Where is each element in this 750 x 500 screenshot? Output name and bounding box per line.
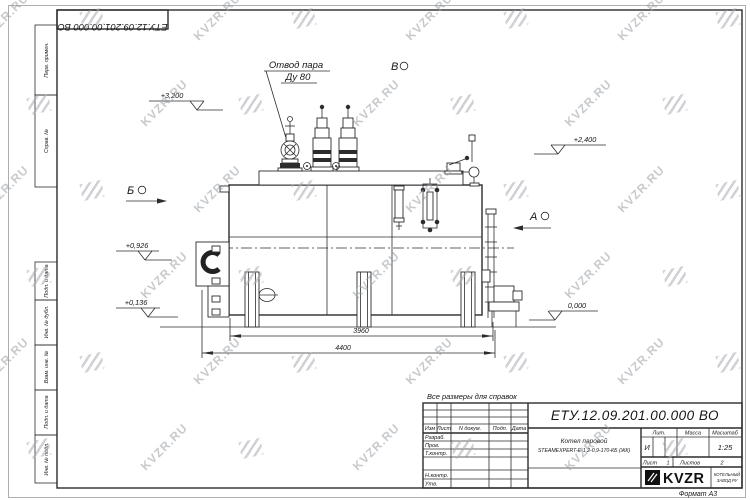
tb-lit-value: И xyxy=(644,443,650,452)
tb-doc-number: ЕТУ.12.09.201.00.000 ВО xyxy=(551,408,719,423)
tb-row-nkontr: Н.контр. xyxy=(425,473,448,479)
steam-header xyxy=(259,171,463,185)
callout-line2: Ду 80 xyxy=(285,72,311,83)
drawing-canvas: ЕТУ.12.09.201.00.000 ВО Перв. примен. Сп… xyxy=(0,0,750,500)
callout-line1: Отвод пара xyxy=(269,60,323,71)
level-gauge-1 xyxy=(394,186,404,230)
view-mark-b-left: Б xyxy=(126,185,167,204)
tb-row-tkontr: Т.контр. xyxy=(425,451,447,457)
elevation-3200-text: +3,200 xyxy=(161,91,184,100)
safety-valve-2 xyxy=(337,105,359,171)
elevation-0136-text: +0,136 xyxy=(125,298,148,307)
tb-header-podp: Подп. xyxy=(493,426,508,432)
elevation-2400: +2,400 xyxy=(534,135,606,154)
view-label-a: А xyxy=(529,211,537,223)
tb-row-utv: Утв. xyxy=(424,482,438,488)
tb-header-massa: Масса xyxy=(685,431,701,437)
margin-label-inv-dubl: Инв. № дубл. xyxy=(44,306,50,339)
tb-row-prov: Пров. xyxy=(425,443,440,449)
reference-note: Все размеры для справок xyxy=(427,392,517,401)
elevation-0000: 0,000 xyxy=(529,301,598,320)
burner-assembly xyxy=(196,186,229,317)
title-block: Изм Лист N докум. Подп. Дата Разраб. Про… xyxy=(423,403,742,498)
margin-label-podp-data-1: Подп. и дата xyxy=(44,264,50,297)
view-mark-v-top: В xyxy=(391,61,408,73)
level-gauge-2 xyxy=(421,178,440,232)
view-mark-a-right: А xyxy=(513,211,551,231)
elevation-3200: +3,200 xyxy=(149,91,223,110)
tb-name-line1: Котел паровой xyxy=(561,437,608,445)
tb-sheets-value: 2 xyxy=(719,461,723,467)
tb-header-masshtab: Масштаб xyxy=(712,431,739,437)
tb-sheet-label: Лист xyxy=(642,461,658,467)
elevation-0926: +0,926 xyxy=(116,241,172,260)
kvzr-logo-text: KVZR xyxy=(663,471,705,487)
dim-4400-text: 4400 xyxy=(335,345,351,352)
margin-label-perv-primen: Перв. примен. xyxy=(44,42,50,77)
elevation-0136: +0,136 xyxy=(116,298,178,317)
drawing-sheet: KVZR.RUKVZR.RUKVZR.RUKVZR.RUKVZR.RUKVZR.… xyxy=(0,0,750,500)
elevation-0926-text: +0,926 xyxy=(126,241,149,250)
tb-sheet-value: 1 xyxy=(666,461,669,467)
kvzr-logo: KVZR КОТЕЛЬНЫЙ ЗАВОД РУ xyxy=(645,470,740,487)
support-legs xyxy=(245,272,475,327)
safety-valve-1 xyxy=(311,105,333,171)
boiler-side-view xyxy=(160,105,556,327)
tb-scale-value: 1:25 xyxy=(718,443,733,452)
tb-name-line2: STEAMEXPERT-Е-1,2-0,9-170-КБ (ЖК) xyxy=(538,448,631,454)
kvzr-logo-sub2: ЗАВОД РУ xyxy=(717,478,739,483)
margin-label-sprav-n: Справ. № xyxy=(44,129,50,153)
kvzr-logo-sub1: КОТЕЛЬНЫЙ xyxy=(714,472,740,477)
tb-header-ndoc: N докум. xyxy=(459,426,481,432)
tb-header-lit: Лит. xyxy=(652,431,666,437)
sheet-frame: ЕТУ.12.09.201.00.000 ВО Перв. примен. Сп… xyxy=(9,6,746,498)
tb-header-izm: Изм xyxy=(425,426,435,432)
boiler-shell xyxy=(229,185,482,315)
steam-outlet-valve xyxy=(278,117,302,172)
elevation-0000-text: 0,000 xyxy=(568,301,586,310)
dim-3960-text: 3960 xyxy=(353,328,369,335)
view-label-b: Б xyxy=(127,185,134,197)
tb-header-list: Лист xyxy=(436,426,452,432)
margin-label-vzam-inv: Взам. инв. № xyxy=(44,350,50,383)
tb-header-data: Дата xyxy=(511,426,527,432)
tb-row-razrab: Разраб. xyxy=(425,435,445,441)
tb-sheets-label: Листов xyxy=(679,461,700,467)
elevation-2400-text: +2,400 xyxy=(574,135,597,144)
format-label: Формат А3 xyxy=(679,491,717,498)
view-label-v: В xyxy=(391,61,398,73)
margin-label-podp-data-2: Подп. и дата xyxy=(44,395,50,428)
top-stamp-code: ЕТУ.12.09.201.00.000 ВО xyxy=(57,21,168,32)
margin-label-inv-podl: Инв. № подл. xyxy=(44,443,50,476)
